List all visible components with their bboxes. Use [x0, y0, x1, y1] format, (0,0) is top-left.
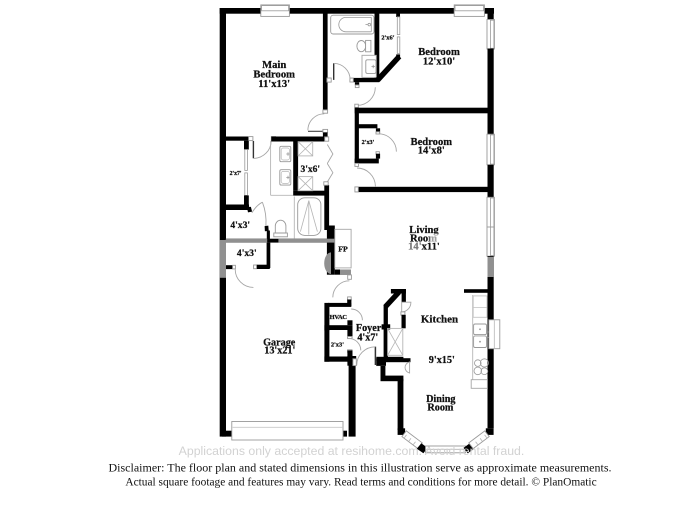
svg-text:3'x6': 3'x6': [301, 165, 321, 175]
svg-text:2'x6': 2'x6': [381, 34, 394, 41]
svg-text:4'x3': 4'x3': [237, 248, 257, 259]
svg-text:13'x21': 13'x21': [264, 346, 295, 357]
svg-text:Applications only accepted at: Applications only accepted at resihome.c…: [179, 444, 525, 458]
svg-text:Kitchen: Kitchen: [421, 313, 458, 325]
svg-text:14'x8': 14'x8': [418, 146, 445, 157]
svg-text:9'x15': 9'x15': [429, 355, 455, 366]
svg-text:Room: Room: [427, 403, 454, 414]
svg-text:HVAC: HVAC: [330, 314, 348, 321]
svg-text:2'x3': 2'x3': [362, 139, 375, 146]
svg-text:4'x7': 4'x7': [357, 332, 378, 343]
svg-text:11'x13': 11'x13': [258, 79, 290, 90]
svg-text:Disclaimer: The floor plan and: Disclaimer: The floor plan and stated di…: [109, 460, 612, 474]
svg-text:4'x3': 4'x3': [230, 220, 250, 231]
svg-text:2'x7': 2'x7': [230, 171, 242, 177]
svg-text:12'x10': 12'x10': [423, 57, 455, 68]
svg-text:2'x3': 2'x3': [331, 341, 344, 348]
svg-text:FP: FP: [338, 245, 348, 254]
svg-text:Actual square footage and feat: Actual square footage and features may v…: [125, 476, 596, 488]
